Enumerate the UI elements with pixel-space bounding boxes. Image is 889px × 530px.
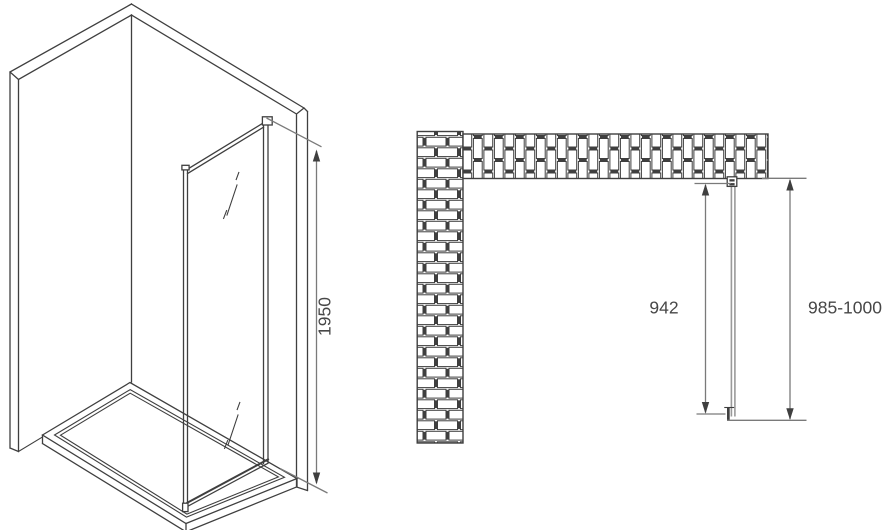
plan-wall-horizontal <box>463 134 768 179</box>
wall-mount-bracket-mark-1 <box>729 179 734 181</box>
glass-left-post-foot <box>183 503 188 511</box>
glass-left-post <box>184 169 188 504</box>
floor-line-left <box>19 437 43 452</box>
right-wall-outline <box>132 4 308 491</box>
overall-arrow-down <box>786 408 793 420</box>
height-arrow-up <box>313 150 320 162</box>
glass-right-post <box>264 124 269 464</box>
glass-width-arrow-up <box>702 184 709 196</box>
tray-base <box>43 435 298 530</box>
glass-width-dimension: 942 <box>649 184 731 415</box>
glass-panel <box>182 117 272 512</box>
glass-left-post-cap <box>182 165 189 170</box>
plan-glass-edge-lines <box>731 186 735 417</box>
glass-top-bar <box>188 123 264 174</box>
glass-width-arrow-down <box>702 402 709 414</box>
height-extension-top <box>267 118 322 147</box>
plan-glass-panel <box>725 177 737 420</box>
glass-width-dimension-label: 942 <box>649 298 678 318</box>
plan-view: 942 985-1000 <box>417 132 882 444</box>
glass-bottom-bar <box>188 459 269 502</box>
plan-walls <box>417 132 768 444</box>
left-wall-outline <box>10 4 132 452</box>
height-arrow-down <box>313 473 320 485</box>
height-dimension-label: 1950 <box>315 297 335 336</box>
overall-width-dimension-label: 985-1000 <box>808 298 882 318</box>
shower-enclosure-drawing: 1950 942 <box>0 0 889 530</box>
height-dimension: 1950 <box>267 118 335 493</box>
isometric-view: 1950 <box>10 4 335 530</box>
overall-width-dimension: 985-1000 <box>727 178 882 420</box>
overall-arrow-up <box>786 179 793 191</box>
plan-wall-vertical <box>417 132 463 444</box>
shower-tray <box>43 383 298 530</box>
technical-drawing-canvas: 1950 942 <box>0 0 889 530</box>
panel-end-profile <box>727 407 730 420</box>
glass-reflection-marks-top <box>224 172 239 218</box>
